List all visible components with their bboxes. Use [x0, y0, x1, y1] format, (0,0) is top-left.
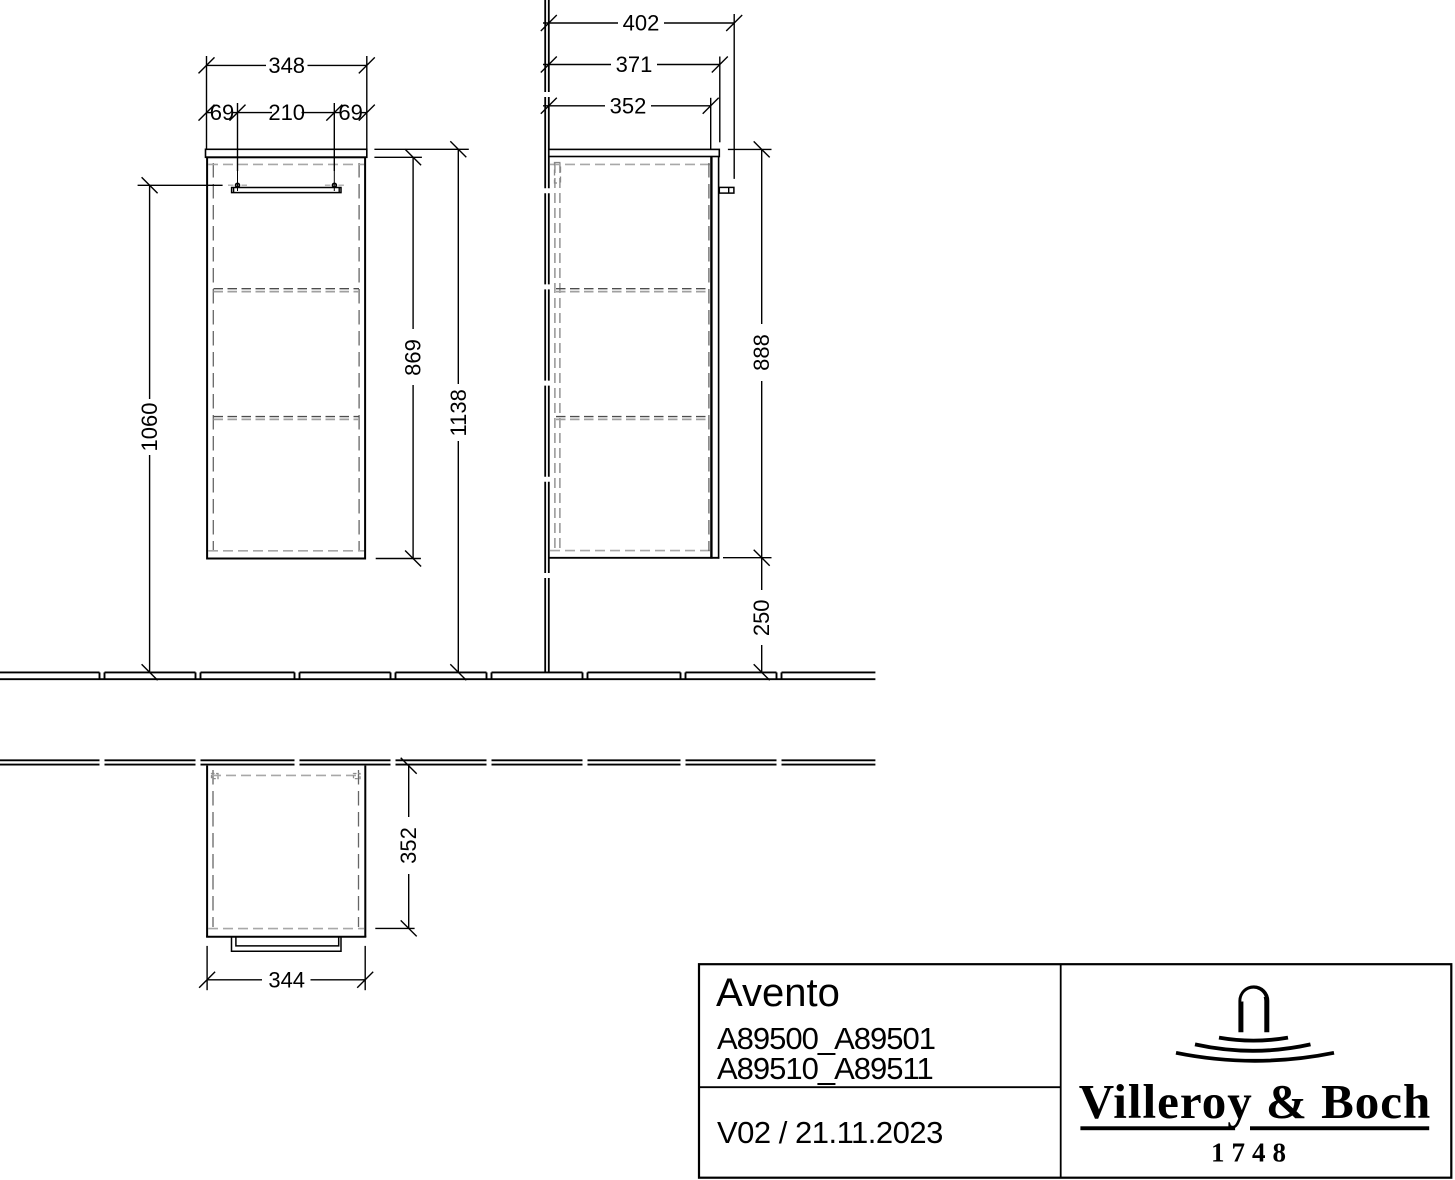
svg-text:402: 402 [623, 11, 660, 36]
svg-text:1138: 1138 [446, 389, 471, 436]
svg-text:352: 352 [396, 827, 421, 864]
svg-text:1060: 1060 [137, 403, 162, 452]
svg-text:69: 69 [338, 100, 362, 125]
svg-text:210: 210 [268, 100, 305, 125]
svg-text:Villeroy & Boch: Villeroy & Boch [1079, 1074, 1432, 1129]
svg-text:250: 250 [749, 599, 774, 636]
svg-text:1748: 1748 [1211, 1138, 1293, 1168]
svg-text:869: 869 [401, 339, 426, 376]
svg-text:344: 344 [268, 967, 305, 992]
svg-text:348: 348 [268, 53, 305, 78]
svg-text:352: 352 [610, 93, 647, 118]
svg-text:A89510_A89511: A89510_A89511 [717, 1051, 933, 1086]
svg-text:888: 888 [749, 334, 774, 371]
svg-text:Avento: Avento [716, 971, 840, 1015]
svg-text:371: 371 [616, 52, 653, 77]
svg-text:V02 / 21.11.2023: V02 / 21.11.2023 [717, 1115, 943, 1150]
svg-text:69: 69 [210, 100, 234, 125]
